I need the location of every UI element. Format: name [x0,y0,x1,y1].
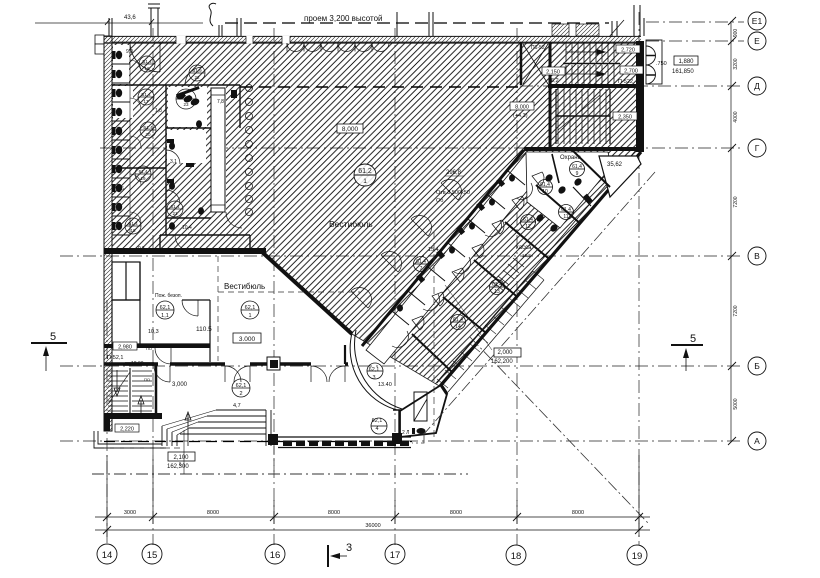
svg-text:7: 7 [420,266,423,272]
svg-text:5000: 5000 [733,398,739,409]
svg-text:4: 4 [375,426,378,432]
svg-text:61,4: 61,4 [139,169,148,174]
svg-text:23: 23 [183,102,189,107]
svg-text:2,350: 2,350 [618,115,632,121]
svg-text:Пож. безоп.: Пож. безоп. [155,293,182,299]
svg-text:Вестибюль: Вестибюль [329,219,373,229]
svg-text:12: 12 [525,224,531,230]
svg-text:7,8: 7,8 [217,99,224,105]
svg-text:16: 16 [270,550,281,561]
svg-text:ПО: ПО [146,346,152,351]
svg-text:Б1,4: Б1,4 [128,221,138,226]
svg-text:15,4: 15,4 [428,247,439,253]
svg-text:35,62: 35,62 [607,162,623,168]
svg-text:8000: 8000 [572,510,584,516]
svg-text:1,880: 1,880 [678,59,694,65]
svg-text:3000: 3000 [124,510,136,516]
svg-text:16: 16 [144,66,150,71]
svg-text:2,150: 2,150 [546,70,560,76]
svg-text:14: 14 [455,324,461,330]
svg-text:61,4: 61,4 [171,204,180,209]
svg-text:Г: Г [755,143,760,153]
svg-text:ПО: ПО [144,377,150,382]
svg-text:18: 18 [511,551,522,562]
svg-text:61,4: 61,4 [572,164,582,170]
svg-text:Отв 3,500х50: Отв 3,500х50 [436,190,470,196]
svg-text:Д: Д [754,81,760,91]
svg-text:18,90: 18,90 [131,361,144,367]
svg-text:162,300: 162,300 [167,464,189,470]
svg-text:4000: 4000 [733,111,739,122]
svg-text:П-52,1: П-52,1 [107,355,124,361]
svg-text:17: 17 [390,550,401,561]
svg-text:(+4,3): (+4,3) [513,113,528,119]
svg-text:1,1: 1,1 [161,313,169,319]
svg-text:20: 20 [145,132,151,137]
svg-text:61,4: 61,4 [453,317,463,323]
svg-text:11: 11 [563,214,568,220]
svg-text:17: 17 [143,99,149,104]
svg-text:18: 18 [130,228,136,233]
svg-text:В: В [754,251,760,261]
svg-text:3,1: 3,1 [170,159,177,165]
svg-text:1,8: 1,8 [155,108,162,114]
svg-text:5: 5 [690,333,696,345]
svg-text:9: 9 [576,171,579,177]
svg-text:13.40: 13.40 [378,382,392,388]
svg-text:110.5: 110.5 [196,326,212,333]
svg-text:Е1: Е1 [752,16,763,26]
svg-text:1: 1 [363,178,367,185]
svg-text:Б1,4: Б1,4 [143,125,153,130]
svg-text:62,1: 62,1 [245,305,256,311]
svg-text:2,000: 2,000 [497,350,513,356]
svg-text:8,000: 8,000 [342,126,359,133]
svg-text:19: 19 [632,551,643,562]
svg-text:Б: Б [754,361,760,371]
svg-text:62,1: 62,1 [236,383,247,389]
svg-text:4,7: 4,7 [233,403,241,409]
svg-text:61,4: 61,4 [492,282,502,288]
svg-text:3: 3 [372,375,375,381]
svg-text:900: 900 [733,29,739,38]
svg-text:.750: .750 [656,61,667,67]
svg-text:13: 13 [494,289,500,295]
svg-text:8000: 8000 [207,510,219,516]
svg-text:2,700: 2,700 [624,69,638,75]
svg-text:касса: касса [516,245,532,251]
svg-text:7200: 7200 [733,196,739,207]
svg-text:8000: 8000 [450,510,462,516]
svg-text:62,1: 62,1 [369,367,380,373]
svg-text:Об: Об [436,198,443,204]
svg-text:61,4: 61,4 [523,217,533,223]
svg-text:43,6: 43,6 [124,15,136,21]
svg-text:16,2: 16,2 [522,253,531,258]
svg-text:8000: 8000 [328,510,340,516]
svg-text:61,2: 61,2 [358,168,372,175]
svg-text:10: 10 [542,189,548,195]
svg-text:Б1,4: Б1,4 [142,59,152,64]
svg-text:3: 3 [346,542,352,554]
svg-text:10,4: 10,4 [182,225,192,231]
svg-text:296,8: 296,8 [446,170,462,176]
svg-text:162,200: 162,200 [491,359,513,365]
svg-text:2,220: 2,220 [120,427,134,433]
svg-text:А: А [754,436,760,446]
svg-text:проем 3,200 высотой: проем 3,200 высотой [304,14,383,23]
svg-text:Вестибюль: Вестибюль [224,282,265,291]
svg-text:36000: 36000 [365,523,380,529]
svg-text:62,1: 62,1 [160,305,171,311]
svg-text:Е: Е [754,36,760,46]
svg-text:2,980: 2,980 [118,345,132,351]
svg-text:1: 1 [248,313,251,319]
svg-text:62,1: 62,1 [372,418,383,424]
svg-text:Б1,9: Б1,9 [192,68,202,73]
svg-text:61,4: 61,4 [416,259,426,265]
svg-text:2,100: 2,100 [173,455,189,461]
svg-text:3.000: 3.000 [239,336,256,343]
svg-text:Охрана: Охрана [560,155,582,161]
svg-text:2 Л: 2 Л [402,430,409,436]
svg-text:Б1,3: Б1,3 [181,94,191,99]
svg-text:П1-52: П1-52 [531,45,545,51]
svg-text:22: 22 [194,75,200,80]
svg-text:61,4: 61,4 [561,207,571,213]
svg-text:61,4: 61,4 [540,182,550,188]
svg-text:161,850: 161,850 [672,69,694,75]
svg-text:15: 15 [147,550,158,561]
svg-text:Б1,4: Б1,4 [141,92,151,97]
svg-text:5: 5 [50,331,56,343]
svg-text:75,6: 75,6 [114,186,124,192]
svg-text:3200: 3200 [733,58,739,69]
svg-text:2,720: 2,720 [621,48,635,54]
svg-text:9,5: 9,5 [138,246,145,252]
svg-text:14: 14 [102,550,113,561]
svg-text:9,0: 9,0 [126,49,133,55]
svg-text:21: 21 [172,211,178,216]
svg-text:19: 19 [140,176,146,181]
svg-text:П-522: П-522 [618,79,633,85]
svg-text:8,000: 8,000 [515,105,529,111]
svg-text:2: 2 [239,391,242,397]
svg-text:10,3: 10,3 [148,329,159,335]
svg-text:7200: 7200 [733,305,739,316]
svg-text:16,2: 16,2 [548,78,559,84]
svg-text:3,000: 3,000 [172,382,188,388]
